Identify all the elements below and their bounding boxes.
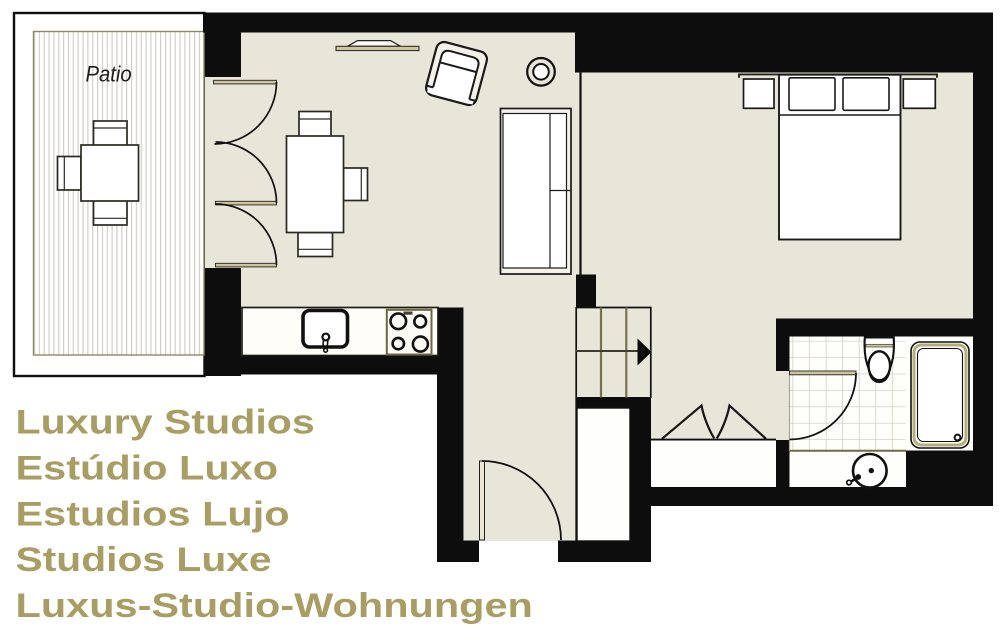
svg-text:Studios Luxe: Studios Luxe bbox=[16, 540, 272, 578]
svg-text:Patio: Patio bbox=[86, 62, 132, 87]
svg-text:Estudios Lujo: Estudios Lujo bbox=[16, 496, 290, 534]
svg-text:Luxury Studios: Luxury Studios bbox=[16, 403, 315, 441]
svg-text:Luxus-Studio-Wohnungen: Luxus-Studio-Wohnungen bbox=[16, 587, 533, 625]
svg-text:Estúdio Luxo: Estúdio Luxo bbox=[16, 450, 279, 488]
